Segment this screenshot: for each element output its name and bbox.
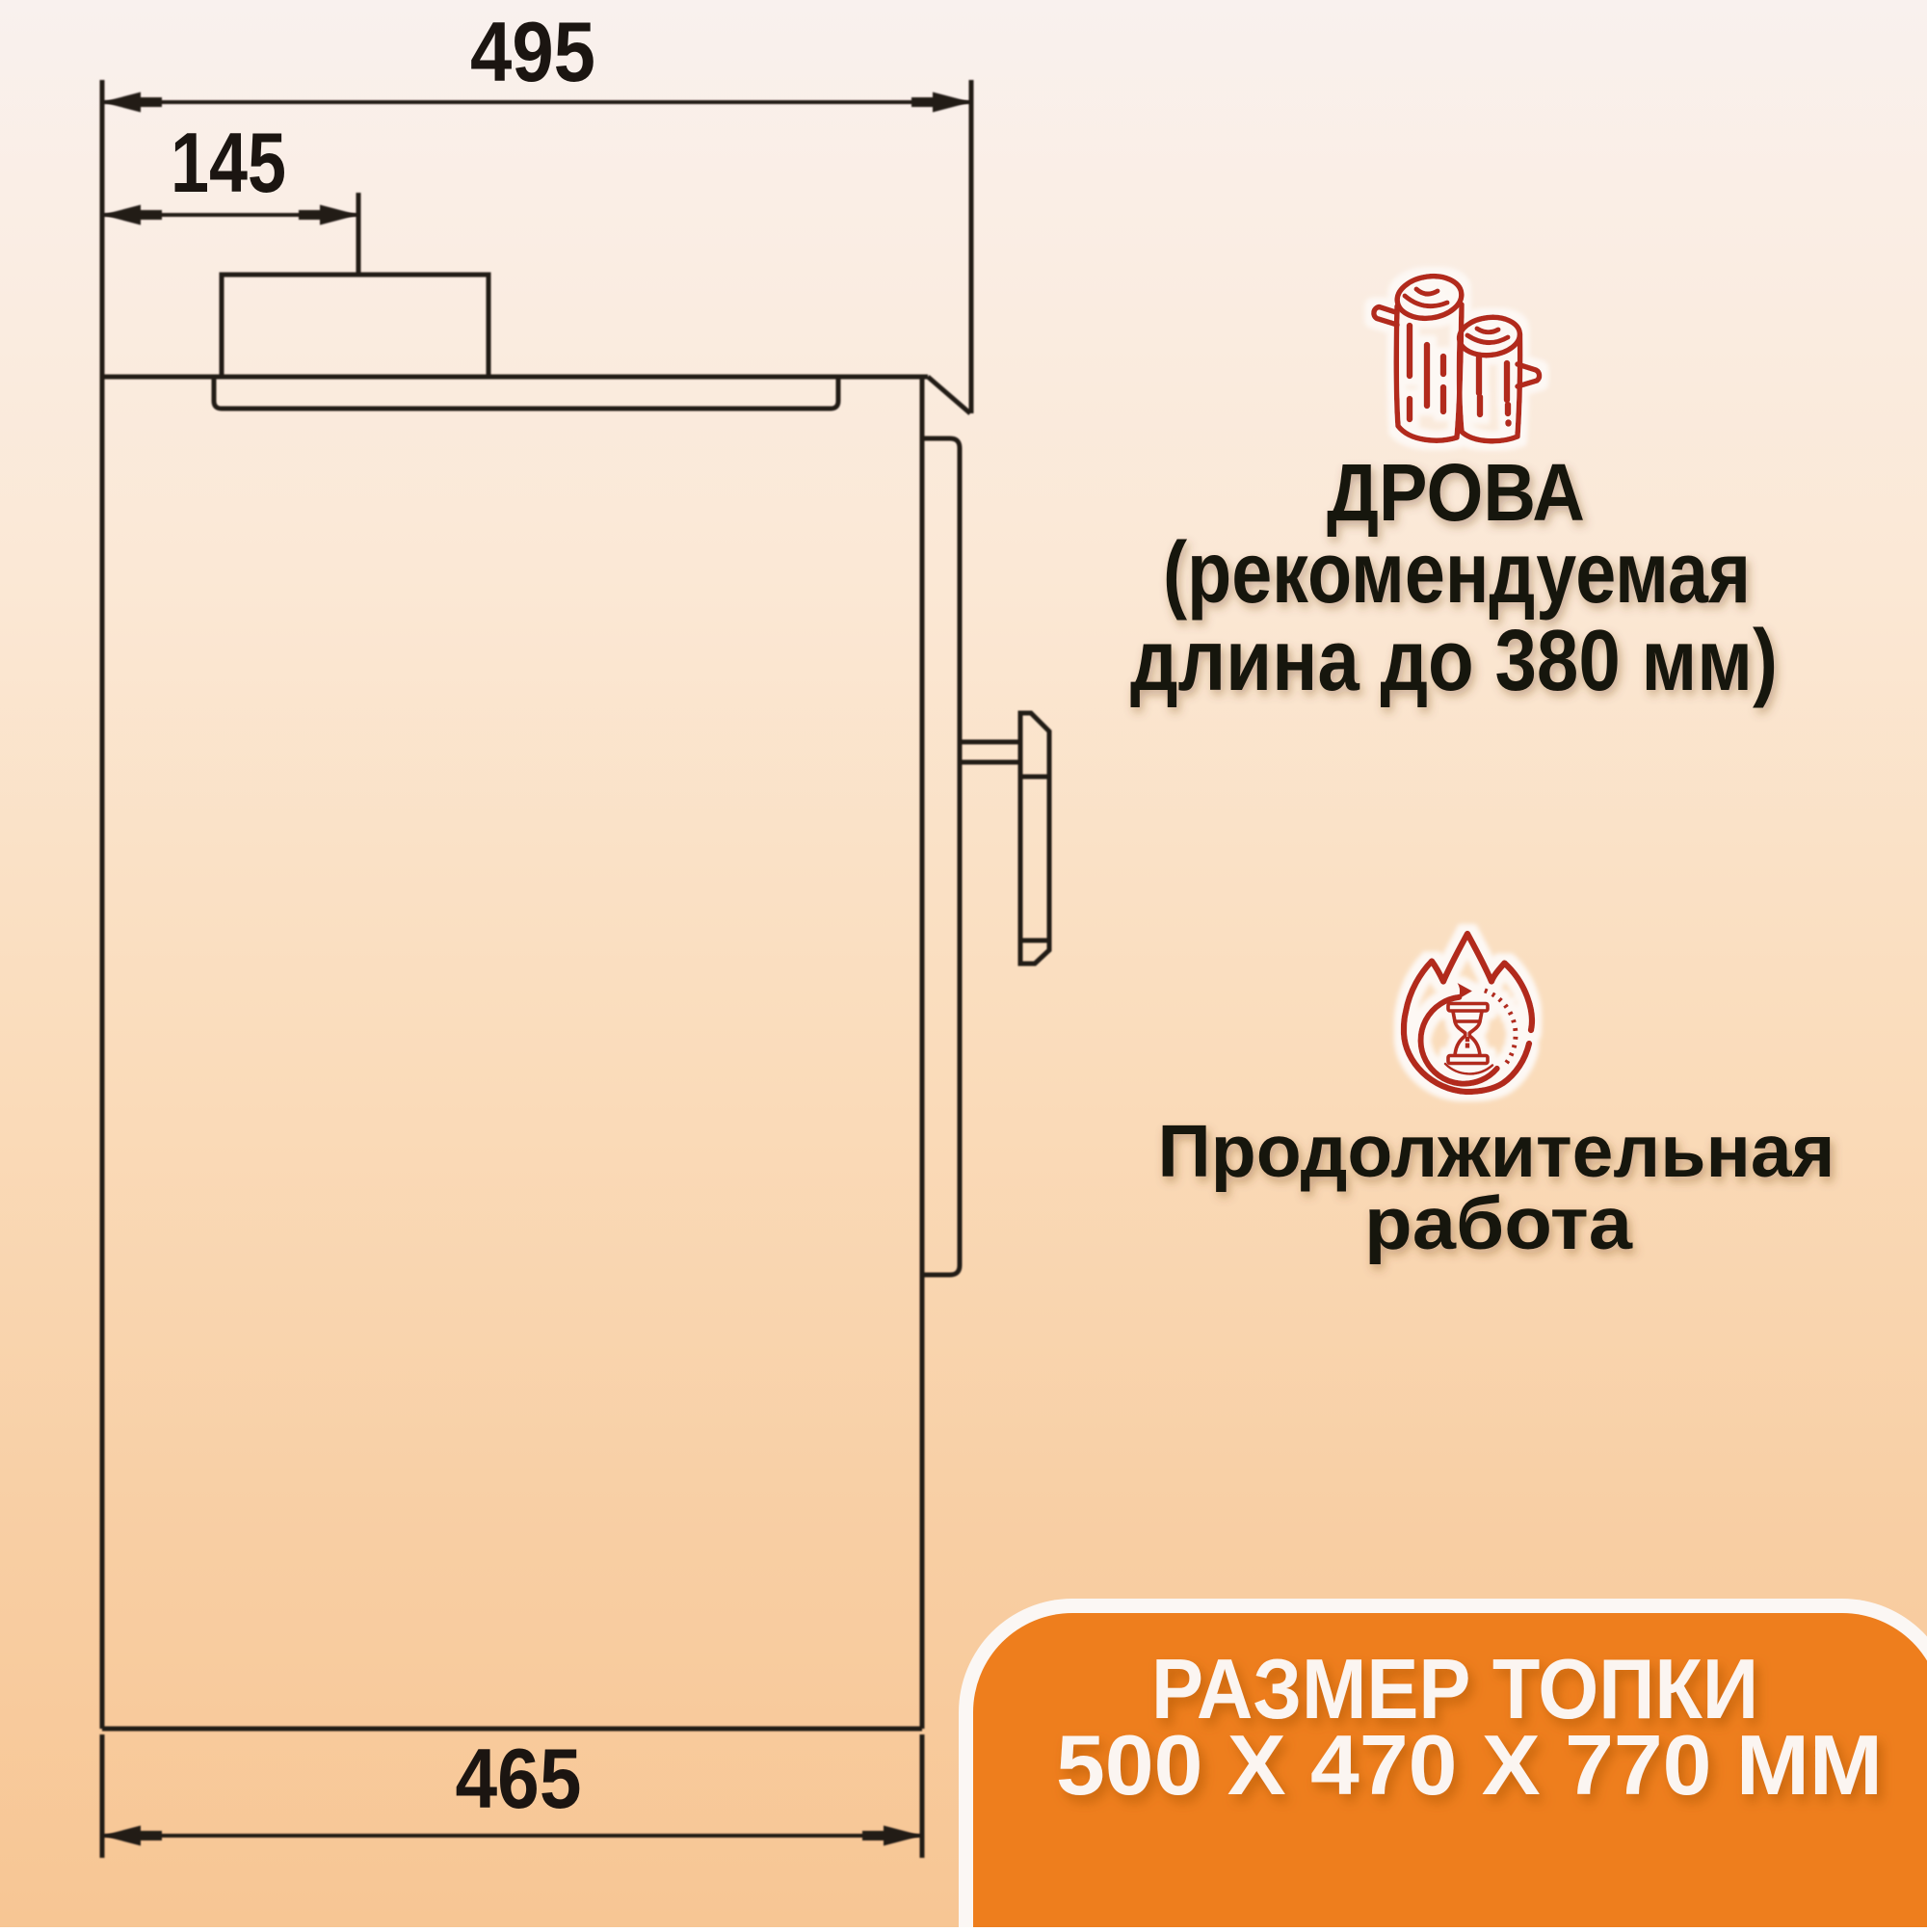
svg-text:500 Х 470 Х 770 ММ: 500 Х 470 Х 770 ММ	[1056, 1717, 1883, 1813]
svg-text:(рекомендуемая: (рекомендуемая	[1163, 525, 1751, 622]
svg-text:работа: работа	[1364, 1182, 1633, 1265]
svg-text:ДРОВА: ДРОВА	[1327, 447, 1585, 538]
svg-text:длина до 380 мм): длина до 380 мм)	[1130, 613, 1778, 709]
svg-text:465: 465	[456, 1731, 582, 1826]
svg-text:Продолжительная: Продолжительная	[1158, 1110, 1835, 1193]
svg-text:495: 495	[470, 4, 595, 99]
svg-text:145: 145	[171, 115, 286, 210]
